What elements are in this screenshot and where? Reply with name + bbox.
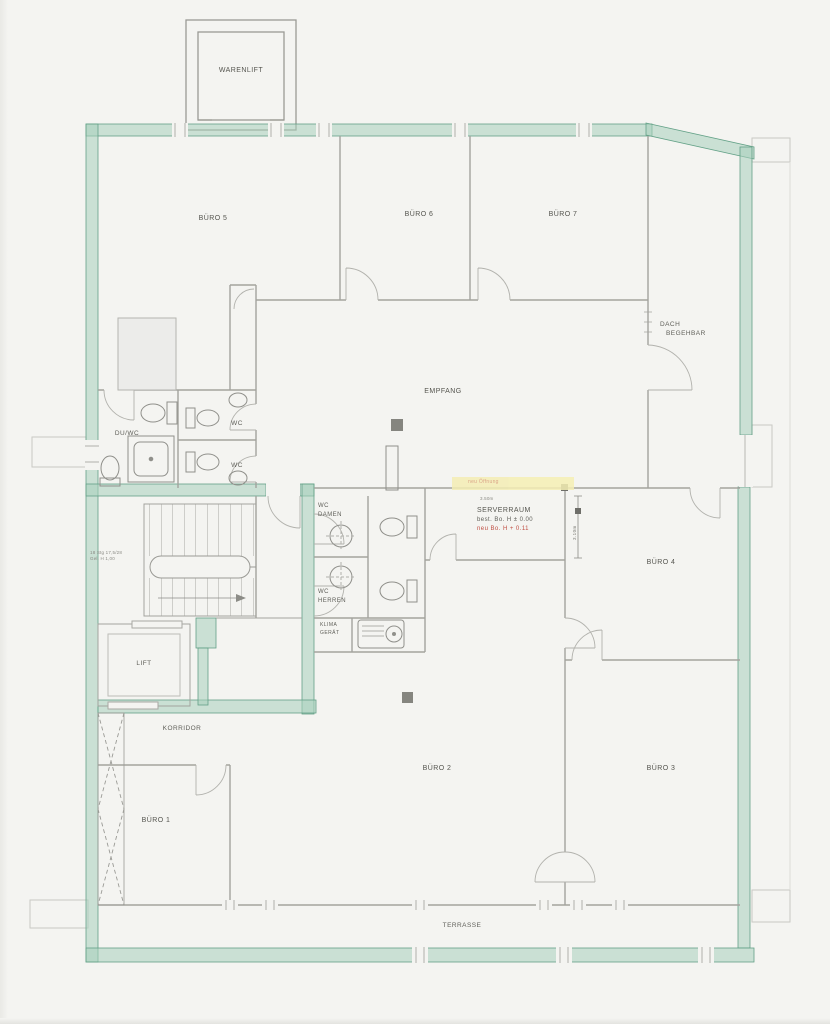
dimension-height-label: 3.10m [572, 525, 579, 540]
room-label-wc-damen: WC DAMEN [318, 502, 342, 519]
column-marker [402, 692, 413, 703]
room-label-buero-1: BÜRO 1 [142, 816, 171, 826]
ac-unit-icon [358, 620, 404, 648]
room-label-buero-3: BÜRO 3 [647, 764, 676, 774]
toilet-icon [380, 516, 417, 538]
column-marker [391, 419, 403, 431]
room-label-terrasse: TERRASSE [443, 921, 482, 930]
room-label-buero-4: BÜRO 4 [647, 558, 676, 568]
serverraum-block: SERVERRAUM best. Bo. H ± 0.00 neu Bo. H … [477, 506, 533, 534]
reception-counter [386, 446, 398, 490]
hatched-shaft [98, 713, 124, 905]
sink-icon [229, 471, 247, 485]
room-label-klima: KLIMA GERÄT [320, 622, 339, 637]
highlight-band: neu Öffnung [452, 477, 574, 490]
room-label-wc-top: WC [231, 419, 243, 428]
room-label-korridor: KORRIDOR [163, 724, 202, 733]
room-label-du-wc: DU/WC [115, 429, 139, 438]
room-label-buero-6: BÜRO 6 [405, 210, 434, 220]
room-label-serverraum: SERVERRAUM [477, 506, 533, 516]
stair-note: 18 Stg 17,5/28 Gel. H 1,00 [90, 550, 122, 563]
toilet-icon [141, 402, 177, 424]
shower-icon [128, 436, 174, 482]
dimension-width-label: 3.50m [480, 496, 494, 503]
sink-icon [100, 456, 120, 486]
room-label-dach: DACH BEGEHBAR [660, 320, 706, 339]
toilet-icon [186, 408, 219, 428]
toilet-icon [186, 452, 219, 472]
floor-plan-linework [0, 0, 830, 1024]
server-note-existing: best. Bo. H ± 0.00 [477, 516, 533, 525]
toilet-icon [380, 580, 417, 602]
floor-plan-scan: neu Öffnung WARENLIFT BÜRO 5 BÜRO 6 BÜRO… [0, 0, 830, 1024]
server-note-new: neu Bo. H + 0.11 [477, 525, 533, 534]
room-label-buero-2: BÜRO 2 [423, 764, 452, 774]
room-label-empfang: EMPFANG [424, 387, 461, 397]
highlight-note: neu Öffnung [468, 479, 499, 485]
staircase [144, 504, 256, 616]
room-label-wc-herren: WC HERREN [318, 588, 346, 605]
room-label-warenlift: WARENLIFT [219, 66, 263, 76]
room-label-buero-7: BÜRO 7 [549, 210, 578, 220]
sink-icon [229, 393, 247, 407]
room-label-buero-5: BÜRO 5 [199, 214, 228, 224]
room-label-lift: LIFT [136, 659, 151, 668]
room-label-wc-bottom: WC [231, 461, 243, 470]
